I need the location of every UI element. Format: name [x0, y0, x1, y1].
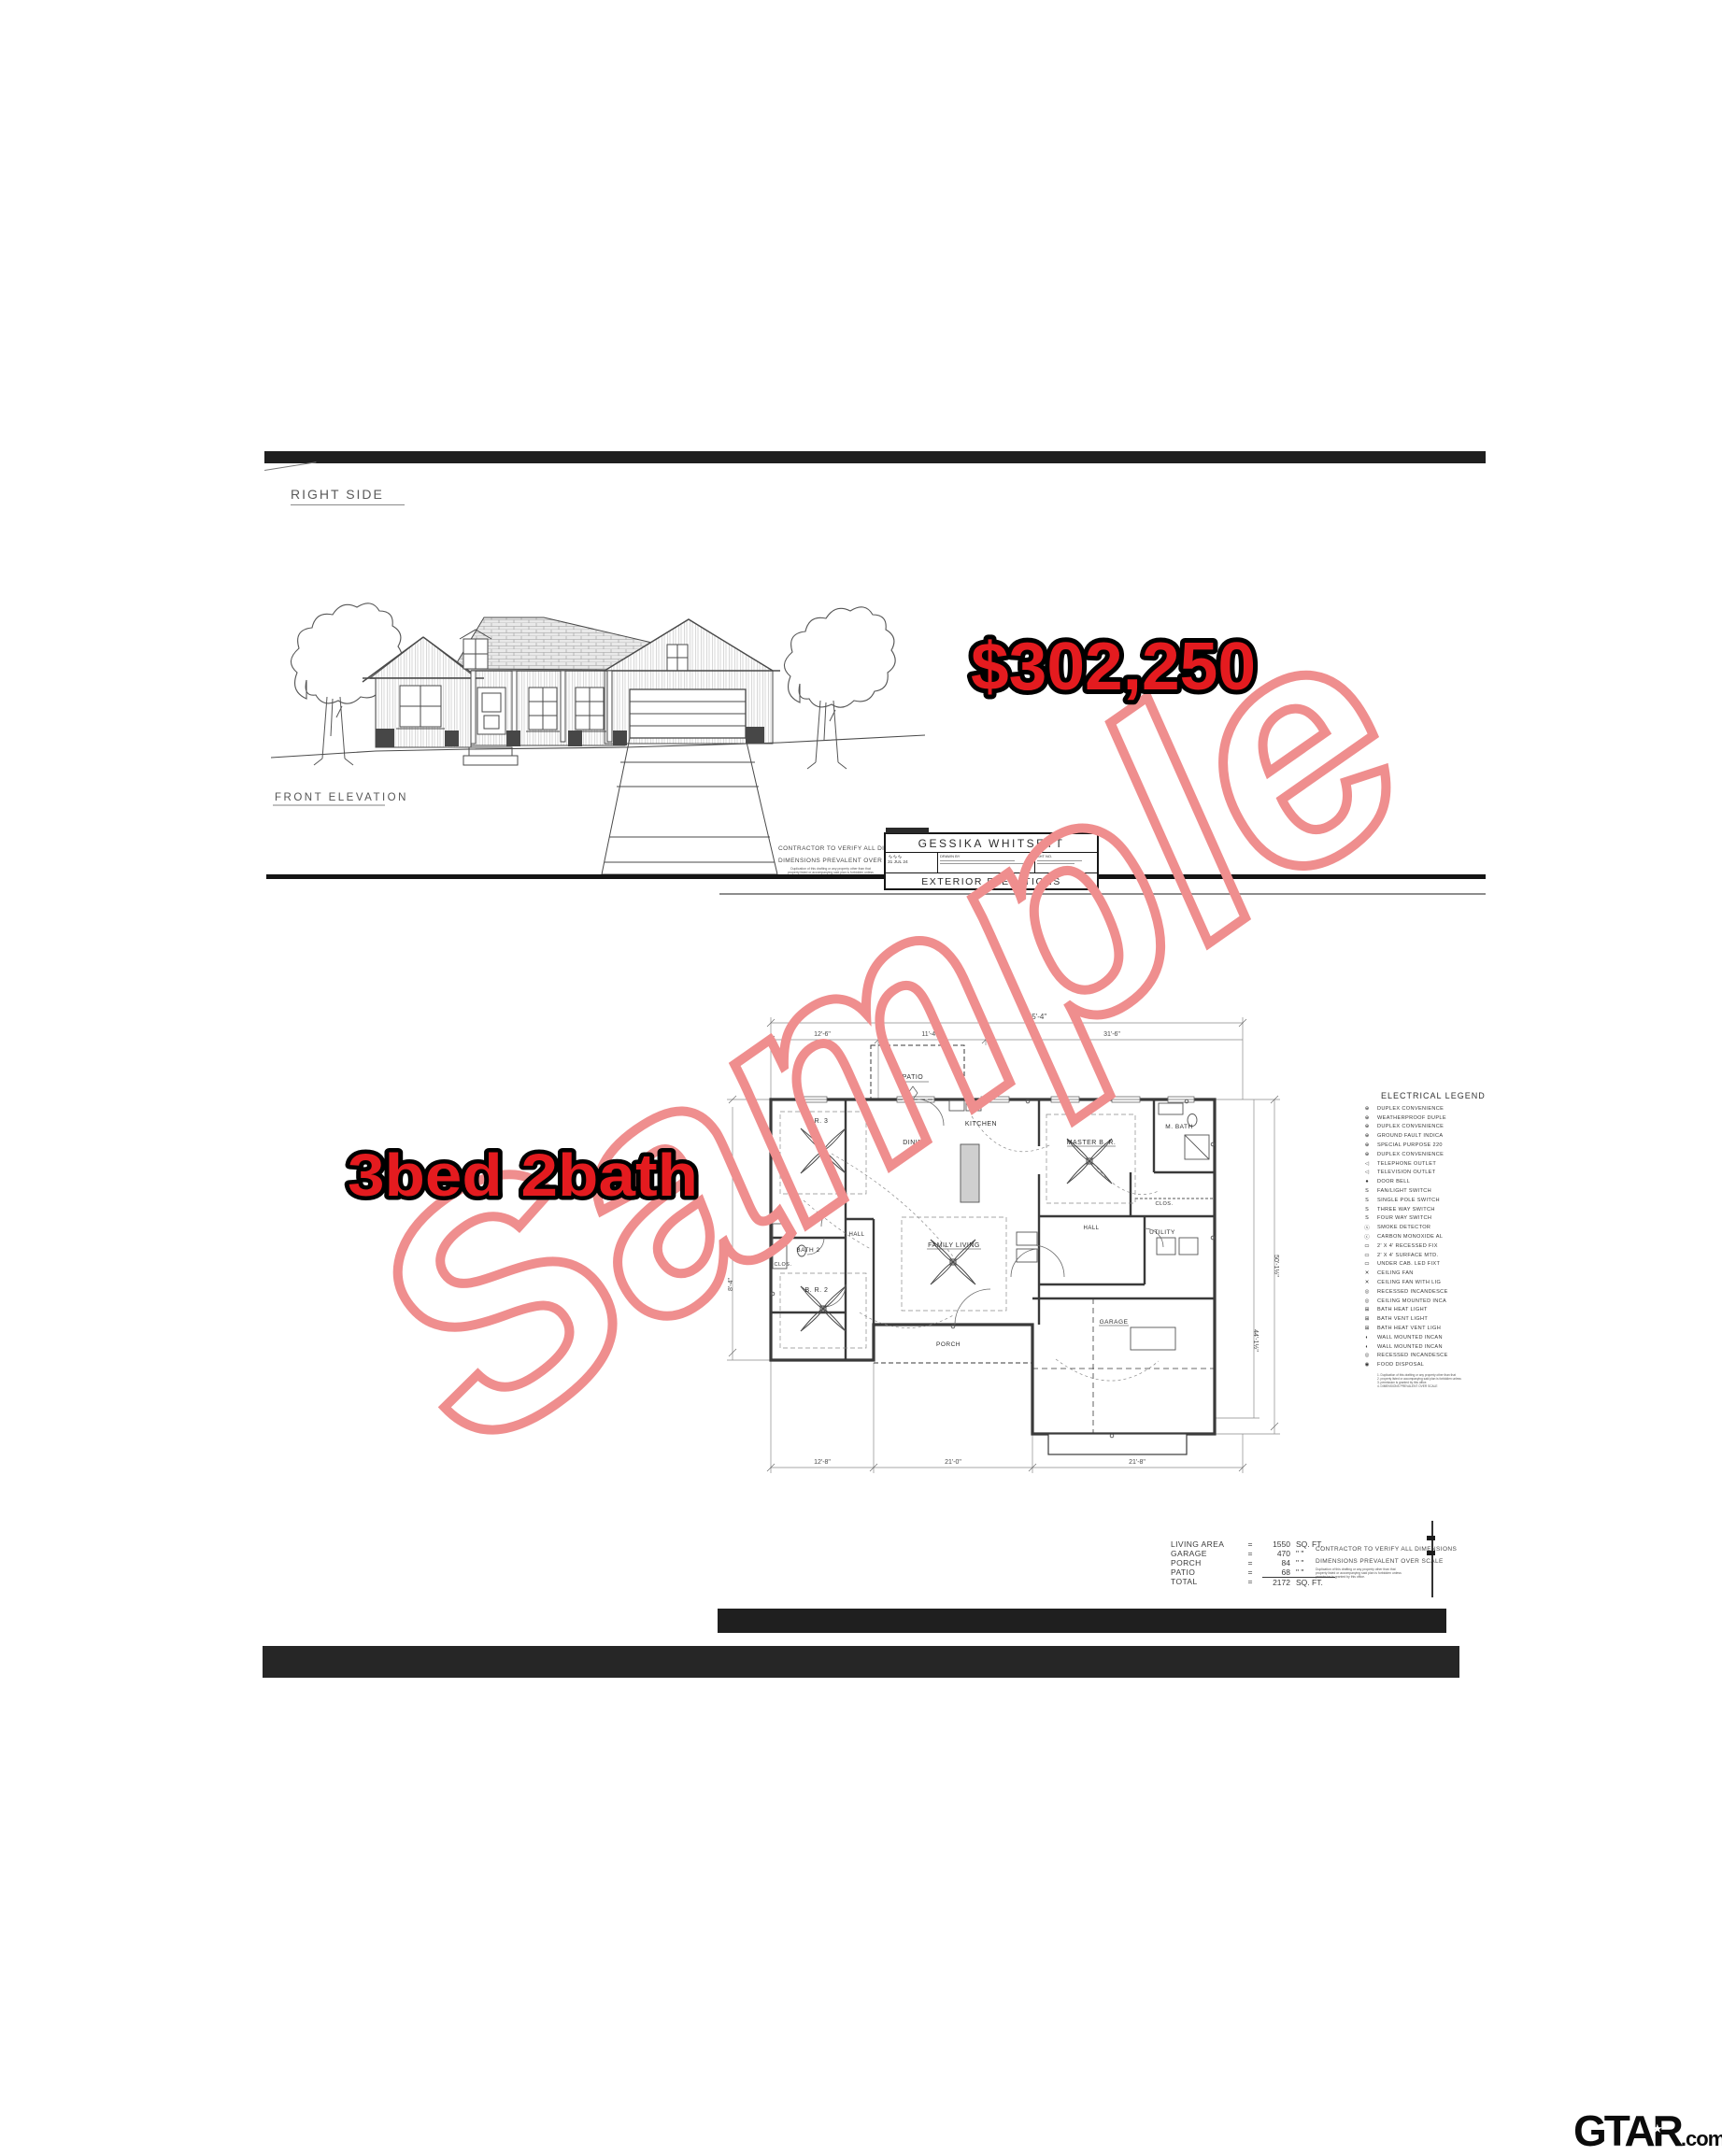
- legend-row: ⊕DUPLEX CONVENIENCE: [1357, 1104, 1495, 1113]
- legend-symbol-icon: ⊕: [1357, 1115, 1377, 1121]
- legend-item-label: RECESSED INCANDESCE: [1377, 1353, 1448, 1358]
- legend-row: ◁TELEPHONE OUTLET: [1357, 1159, 1495, 1169]
- legend-item-label: SINGLE POLE SWITCH: [1377, 1198, 1440, 1203]
- svg-text:KITCHEN: KITCHEN: [965, 1121, 997, 1128]
- prevail-note: DIMENSIONS PREVALENT OVER SCALE: [778, 858, 883, 864]
- house-line-art: [271, 617, 925, 874]
- bottom-divider-bar-long: [263, 1646, 1459, 1678]
- legend-row: ◉FOOD DISPOSAL: [1357, 1360, 1495, 1369]
- owner-name: GESSIKA WHITSETT: [886, 834, 1097, 853]
- legend-symbol-icon: ⊞: [1357, 1316, 1377, 1322]
- legend-item-label: WALL MOUNTED INCAN: [1377, 1335, 1443, 1340]
- legend-symbol-icon: ▭: [1357, 1261, 1377, 1267]
- legend-item-label: CEILING MOUNTED INCA: [1377, 1298, 1446, 1304]
- legend-item-label: DUPLEX CONVENIENCE: [1377, 1106, 1444, 1112]
- svg-text:55'-4": 55'-4": [1028, 1013, 1047, 1021]
- legend-symbol-icon: ⊞: [1357, 1307, 1377, 1312]
- svg-text:50'-1½": 50'-1½": [1273, 1255, 1280, 1277]
- electrical-legend: ELECTRICAL LEGEND ⊕DUPLEX CONVENIENCE⊕WE…: [1357, 1091, 1495, 1388]
- legend-item-label: BATH HEAT LIGHT: [1377, 1307, 1428, 1312]
- legend-row: ⊕DUPLEX CONVENIENCE: [1357, 1123, 1495, 1132]
- sheet-edge-tick: [1427, 1536, 1435, 1540]
- legend-symbol-icon: ⊕: [1357, 1106, 1377, 1112]
- svg-text:UTILITY: UTILITY: [1149, 1229, 1175, 1236]
- legend-row: ⓢSMOKE DETECTOR: [1357, 1223, 1495, 1232]
- svg-text:HALL: HALL: [1083, 1226, 1099, 1231]
- legend-item-label: TELEVISION OUTLET: [1377, 1170, 1436, 1175]
- legend-symbol-icon: ▭: [1357, 1253, 1377, 1258]
- legend-item-label: TELEPHONE OUTLET: [1377, 1161, 1436, 1167]
- legend-row: ⊞BATH HEAT LIGHT: [1357, 1306, 1495, 1315]
- legend-item-label: FOUR WAY SWITCH: [1377, 1215, 1431, 1221]
- front-elevation-label: FRONT ELEVATION: [273, 792, 408, 805]
- legend-item-label: CEILING FAN: [1377, 1270, 1414, 1276]
- svg-text:21'-0": 21'-0": [945, 1459, 961, 1466]
- area-table: LIVING AREA=1550SQ. FT. GARAGE=470" " PO…: [1171, 1539, 1335, 1587]
- legend-row: SSINGLE POLE SWITCH: [1357, 1196, 1495, 1205]
- section-divider-heavy: [266, 874, 1486, 879]
- svg-text:FRONT ELEVATION: FRONT ELEVATION: [275, 792, 408, 803]
- sheet-title: EXTERIOR ELEVATIONS: [886, 873, 1097, 889]
- legend-item-label: 2' X 4' SURFACE MTD.: [1377, 1253, 1438, 1258]
- legend-item-label: SMOKE DETECTOR: [1377, 1225, 1430, 1230]
- legend-item-label: 2' X 4' RECESSED FIX: [1377, 1243, 1438, 1249]
- sheet-no-cell: SHT NO.: [1035, 853, 1097, 872]
- svg-text:B. R. 2: B. R. 2: [805, 1287, 829, 1294]
- legend-row: ◎RECESSED INCANDESCE: [1357, 1352, 1495, 1361]
- legend-item-label: CEILING FAN WITH LIG: [1377, 1280, 1441, 1285]
- legend-row: ⊞BATH VENT LIGHT: [1357, 1314, 1495, 1324]
- plan-dimension-labels: 55'-4" 12'-6" 11'-4" 31'-6" 12'-8" 21'-0…: [728, 1013, 1280, 1466]
- legend-symbol-icon: ⊕: [1357, 1152, 1377, 1157]
- svg-text:3bed 2bath: 3bed 2bath: [348, 1142, 698, 1209]
- legend-item-label: RECESSED INCANDESCE: [1377, 1289, 1448, 1295]
- svg-text:PORCH: PORCH: [936, 1341, 961, 1348]
- table-row: GARAGE=470" ": [1171, 1549, 1335, 1558]
- legend-symbol-icon: S: [1357, 1215, 1377, 1221]
- svg-text:DINING: DINING: [903, 1140, 929, 1146]
- right-side-label: RIGHT SIDE: [291, 487, 405, 505]
- electrical-legend-items: ⊕DUPLEX CONVENIENCE⊕WEATHERPROOF DUPLE⊕D…: [1357, 1104, 1495, 1369]
- table-row: LIVING AREA=1550SQ. FT.: [1171, 1539, 1335, 1549]
- bottom-divider-bar-short: [718, 1609, 1446, 1633]
- legend-row: ▭2' X 4' SURFACE MTD.: [1357, 1251, 1495, 1260]
- legend-symbol-icon: ⊕: [1357, 1133, 1377, 1139]
- gtar-suffix-text: .com: [1681, 2127, 1722, 2150]
- legend-item-label: DUPLEX CONVENIENCE: [1377, 1124, 1444, 1129]
- legend-row: ◐WALL MOUNTED INCAN: [1357, 1333, 1495, 1342]
- legend-item-label: SPECIAL PURPOSE 220: [1377, 1142, 1443, 1148]
- floor-plan-drawing: 55'-4" 12'-6" 11'-4" 31'-6" 12'-8" 21'-0…: [719, 1004, 1308, 1504]
- plan-fixtures: [771, 1099, 1215, 1438]
- legend-row: ✕CEILING FAN WITH LIG: [1357, 1278, 1495, 1287]
- legend-row: SFOUR WAY SWITCH: [1357, 1214, 1495, 1224]
- legend-item-label: WEATHERPROOF DUPLE: [1377, 1115, 1446, 1121]
- legend-item-label: GROUND FAULT INDICA: [1377, 1133, 1443, 1139]
- legend-symbol-icon: S: [1357, 1188, 1377, 1194]
- date-cell: ∿∿∿ 31 JUL 24: [886, 853, 938, 872]
- svg-text:CLOS.: CLOS.: [774, 1262, 791, 1268]
- legend-row: ✕CEILING FAN: [1357, 1269, 1495, 1278]
- legend-symbol-icon: S: [1357, 1207, 1377, 1213]
- svg-text:31'-6": 31'-6": [1103, 1031, 1120, 1038]
- legend-row: ⊞BATH HEAT VENT LIGH: [1357, 1324, 1495, 1333]
- svg-text:44'-1½": 44'-1½": [1252, 1329, 1259, 1352]
- legend-item-label: DUPLEX CONVENIENCE: [1377, 1152, 1444, 1157]
- top-divider-bar: [264, 451, 1486, 463]
- svg-text:11'-4": 11'-4": [921, 1031, 938, 1038]
- legend-row: ▭UNDER CAB. LED FIXT: [1357, 1260, 1495, 1269]
- legend-symbol-icon: ◎: [1357, 1353, 1377, 1358]
- legend-row: STHREE WAY SWITCH: [1357, 1205, 1495, 1214]
- title-block-tab: [886, 828, 929, 833]
- legend-symbol-icon: ✕: [1357, 1280, 1377, 1285]
- plan-dimensions: [727, 1017, 1280, 1473]
- legend-symbol-icon: ◁: [1357, 1161, 1377, 1167]
- gtar-logo: GTAR.com ★: [1573, 2106, 1722, 2156]
- svg-text:CLOS.: CLOS.: [1155, 1201, 1173, 1207]
- legend-symbol-icon: ◎: [1357, 1298, 1377, 1304]
- legend-symbol-icon: ◉: [1357, 1362, 1377, 1368]
- svg-text:HALL: HALL: [848, 1232, 864, 1238]
- legend-symbol-icon: ⓒ: [1357, 1233, 1377, 1241]
- legend-row: ◎CEILING MOUNTED INCA: [1357, 1297, 1495, 1306]
- legend-row: ⊕WEATHERPROOF DUPLE: [1357, 1113, 1495, 1123]
- table-row-total: TOTAL=2172SQ. FT.: [1171, 1577, 1335, 1587]
- legend-item-label: BATH VENT LIGHT: [1377, 1316, 1428, 1322]
- legend-row: ⊕DUPLEX CONVENIENCE: [1357, 1150, 1495, 1159]
- legend-item-label: UNDER CAB. LED FIXT: [1377, 1261, 1440, 1267]
- legend-row: ◐WALL MOUNTED INCAN: [1357, 1342, 1495, 1352]
- legend-symbol-icon: ⊕: [1357, 1124, 1377, 1129]
- svg-text:PATIO: PATIO: [903, 1074, 924, 1081]
- svg-text:$302,250: $302,250: [971, 630, 1256, 704]
- legend-title: ELECTRICAL LEGEND: [1381, 1091, 1495, 1100]
- legend-notes: 1. Duplication of this drafting or any p…: [1377, 1373, 1495, 1388]
- ceiling-fan-icon: [801, 1128, 846, 1173]
- legend-symbol-icon: ▭: [1357, 1243, 1377, 1249]
- sheet-edge-tick: [1427, 1551, 1435, 1555]
- legend-row: ▭2' X 4' RECESSED FIX: [1357, 1241, 1495, 1251]
- legend-item-label: DOOR BELL: [1377, 1179, 1410, 1184]
- drawn-by-cell: DRAWN BY: [938, 853, 1035, 872]
- legend-symbol-icon: ✕: [1357, 1270, 1377, 1276]
- legend-row: ⊕SPECIAL PURPOSE 220: [1357, 1141, 1495, 1150]
- gtar-brand-text: GTAR: [1573, 2106, 1681, 2155]
- legend-item-label: CARBON MONOXIDE AL: [1377, 1234, 1443, 1240]
- legend-symbol-icon: ◎: [1357, 1289, 1377, 1295]
- svg-text:BATH 2: BATH 2: [796, 1247, 819, 1254]
- svg-text:FAMILY LIVING: FAMILY LIVING: [928, 1242, 980, 1249]
- right-tree: [784, 607, 895, 769]
- verify-note: CONTRACTOR TO VERIFY ALL DIMENSIONS: [778, 845, 883, 852]
- legend-row: SFAN/LIGHT SWITCH: [1357, 1186, 1495, 1196]
- legend-row: ⓒCARBON MONOXIDE AL: [1357, 1232, 1495, 1241]
- svg-text:8'-4": 8'-4": [728, 1278, 734, 1291]
- svg-text:12'-6": 12'-6": [814, 1031, 831, 1038]
- svg-text:21'-8": 21'-8": [1129, 1459, 1146, 1466]
- svg-text:12'-8": 12'-8": [814, 1459, 831, 1466]
- title-block: GESSIKA WHITSETT ∿∿∿ 31 JUL 24 DRAWN BY …: [884, 832, 1099, 890]
- legend-item-label: WALL MOUNTED INCAN: [1377, 1344, 1443, 1350]
- sheet-edge-line: [1431, 1521, 1433, 1597]
- beds-baths-stamp: 3bed 2bath: [338, 1136, 712, 1220]
- legend-item-label: BATH HEAT VENT LIGH: [1377, 1326, 1441, 1331]
- svg-text:GARAGE: GARAGE: [1100, 1319, 1129, 1326]
- legend-symbol-icon: ◁: [1357, 1170, 1377, 1175]
- legend-symbol-icon: ⓢ: [1357, 1224, 1377, 1231]
- legend-item-label: THREE WAY SWITCH: [1377, 1207, 1435, 1213]
- legend-symbol-icon: S: [1357, 1198, 1377, 1203]
- front-elevation-drawing: FRONT ELEVATION: [271, 577, 925, 886]
- section-divider-thin: [719, 893, 1486, 895]
- table-row: PATIO=68" ": [1171, 1567, 1335, 1577]
- legend-row: ⊕GROUND FAULT INDICA: [1357, 1131, 1495, 1141]
- legend-row: ◁TELEVISION OUTLET: [1357, 1169, 1495, 1178]
- legend-row: ◎RECESSED INCANDESCE: [1357, 1287, 1495, 1297]
- table-row: PORCH=84" ": [1171, 1558, 1335, 1567]
- legend-row: ●DOOR BELL: [1357, 1177, 1495, 1186]
- legend-symbol-icon: ●: [1357, 1179, 1377, 1184]
- legend-symbol-icon: ◐: [1357, 1344, 1377, 1350]
- plan-walls: [771, 1045, 1215, 1454]
- legend-item-label: FOOD DISPOSAL: [1377, 1362, 1424, 1368]
- legend-item-label: FAN/LIGHT SWITCH: [1377, 1188, 1431, 1194]
- plan-door-swings: [807, 1099, 1163, 1325]
- svg-text:B. R. 3: B. R. 3: [805, 1118, 829, 1125]
- price-stamp: $302,250: [958, 622, 1275, 711]
- svg-text:M. BATH: M. BATH: [1165, 1124, 1192, 1130]
- svg-text:MASTER B. R.: MASTER B. R.: [1067, 1140, 1117, 1146]
- texas-star-icon: ★: [1652, 2121, 1663, 2136]
- legend-symbol-icon: ◐: [1357, 1335, 1377, 1340]
- legend-symbol-icon: ⊕: [1357, 1142, 1377, 1148]
- legend-symbol-icon: ⊞: [1357, 1326, 1377, 1331]
